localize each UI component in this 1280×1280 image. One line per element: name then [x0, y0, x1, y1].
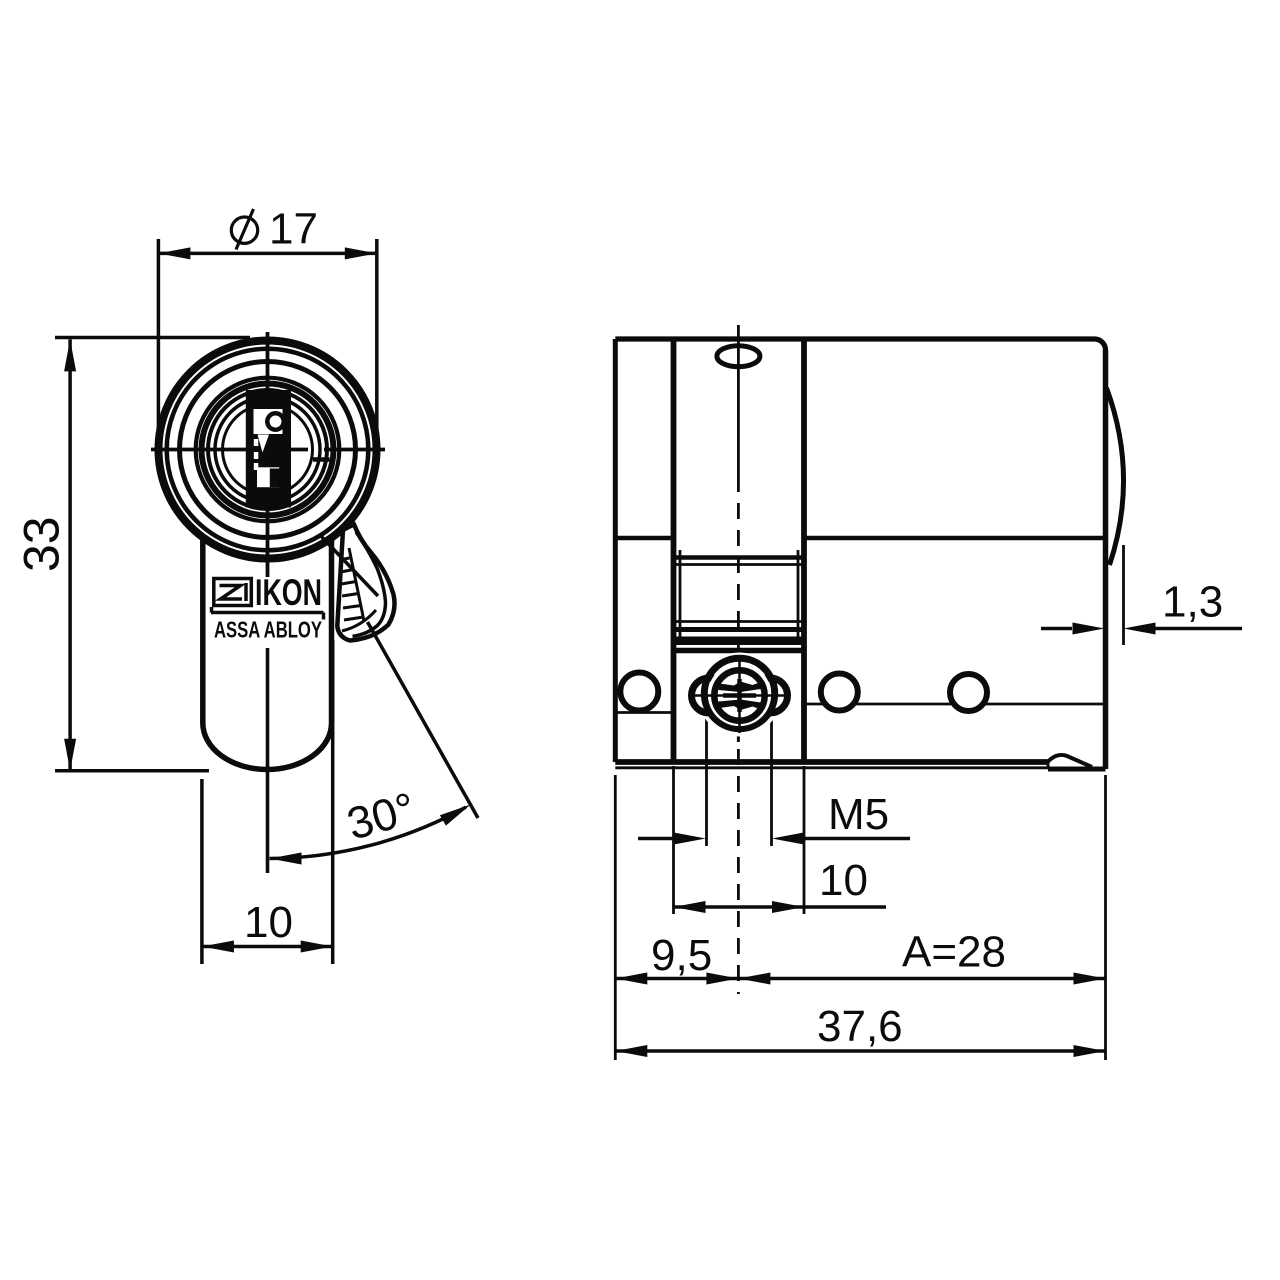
svg-text:A=28: A=28 [902, 928, 1006, 977]
svg-text:10: 10 [244, 898, 293, 947]
svg-text:IKON: IKON [255, 572, 322, 613]
svg-text:33: 33 [14, 516, 70, 572]
svg-text:17: 17 [269, 205, 318, 254]
svg-text:M5: M5 [828, 790, 889, 839]
svg-text:9,5: 9,5 [651, 931, 712, 980]
svg-text:10: 10 [819, 856, 868, 905]
svg-text:1,3: 1,3 [1162, 578, 1223, 627]
svg-text:ASSA ABLOY: ASSA ABLOY [214, 617, 322, 643]
svg-text:37,6: 37,6 [817, 1002, 903, 1051]
